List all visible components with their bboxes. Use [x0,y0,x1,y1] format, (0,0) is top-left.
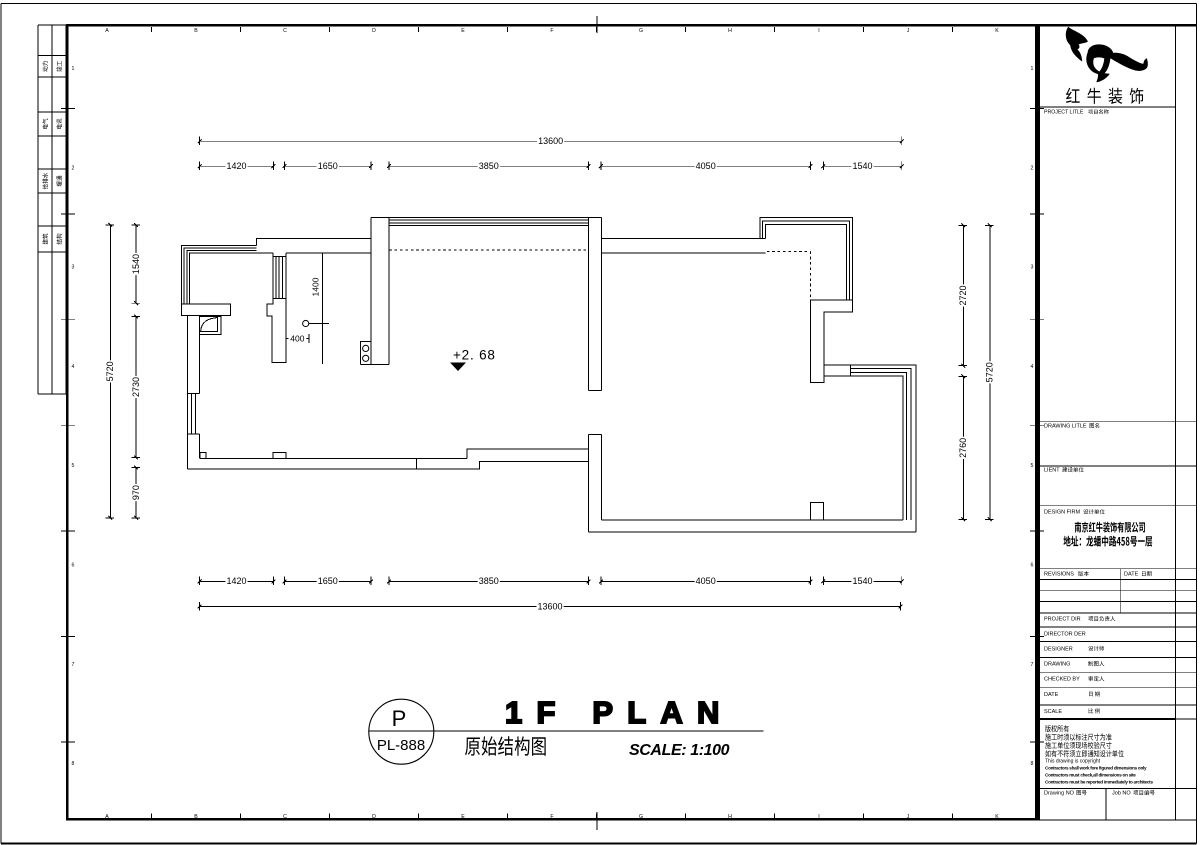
svg-text:F: F [550,28,553,34]
svg-text:13600: 13600 [538,601,563,611]
svg-text:4: 4 [1031,364,1034,370]
svg-text:I: I [818,814,819,820]
svg-text:2: 2 [1031,165,1034,171]
svg-text:3: 3 [72,265,75,271]
svg-text:5720: 5720 [985,362,995,382]
svg-text:3850: 3850 [479,576,499,586]
svg-text:Contractors must check,all dim: Contractors must check,all dimensions on… [1045,773,1136,778]
svg-text:C: C [283,814,287,820]
svg-text:PROJECT DIR: PROJECT DIR [1044,617,1081,623]
svg-text:DATE: DATE [1124,572,1139,578]
svg-text:4: 4 [72,364,75,370]
svg-text:D: D [372,28,376,34]
svg-text:1400: 1400 [310,277,320,296]
svg-text:B: B [194,28,198,34]
svg-text:SCALE: SCALE [1044,709,1062,715]
svg-text:1: 1 [1031,66,1034,72]
svg-text:SCALE: 1:100: SCALE: 1:100 [629,742,730,759]
svg-text:K: K [995,814,999,820]
svg-text:D: D [372,814,376,820]
svg-text:1F PLAN: 1F PLAN [505,695,734,730]
svg-text:A: A [105,28,109,34]
svg-text:B: B [194,814,198,820]
svg-text:J: J [907,28,910,34]
svg-text:7: 7 [1031,662,1034,668]
svg-text:G: G [639,814,643,820]
svg-text:2760: 2760 [958,438,968,458]
svg-text:8: 8 [1031,761,1034,767]
svg-text:970: 970 [131,485,141,500]
svg-text:Job NO: Job NO [1112,791,1131,797]
svg-text:PROJECT LITLE: PROJECT LITLE [1044,110,1084,116]
svg-text:H: H [728,28,732,34]
svg-text:2: 2 [72,165,75,171]
svg-text:7: 7 [72,662,75,668]
svg-text:1650: 1650 [318,161,338,171]
svg-text:1420: 1420 [226,161,246,171]
svg-text:5720: 5720 [105,361,115,381]
svg-text:DESIGN FIRM: DESIGN FIRM [1044,510,1080,516]
svg-text:400: 400 [290,333,304,343]
svg-text:1540: 1540 [852,161,872,171]
svg-text:DATE: DATE [1044,692,1059,698]
svg-text:REVISIONS: REVISIONS [1044,572,1074,578]
svg-text:E: E [461,814,465,820]
svg-text:+2. 68: +2. 68 [453,348,496,363]
svg-text:I: I [818,28,819,34]
svg-text:1420: 1420 [226,576,246,586]
svg-text:13600: 13600 [538,136,563,146]
svg-text:8: 8 [72,761,75,767]
svg-text:1540: 1540 [131,254,141,274]
svg-text:H: H [728,814,732,820]
svg-text:Contractors shall work fore fi: Contractors shall work fore figured dime… [1045,766,1147,771]
svg-text:5: 5 [72,463,75,469]
svg-text:DIRECTOR DER: DIRECTOR DER [1044,632,1086,638]
svg-text:Contractors must be reported i: Contractors must be reported immediately… [1045,780,1153,785]
svg-text:1: 1 [72,66,75,72]
svg-text:3: 3 [1031,265,1034,271]
svg-text:DRAWING LITLE: DRAWING LITLE [1044,424,1087,430]
svg-text:Drawing NO: Drawing NO [1044,791,1075,797]
svg-text:6: 6 [72,563,75,569]
svg-text:CHECKED BY: CHECKED BY [1044,677,1080,683]
svg-text:E: E [461,28,465,34]
svg-text:4050: 4050 [696,161,716,171]
svg-text:2720: 2720 [958,285,968,305]
svg-text:K: K [995,28,999,34]
svg-text:P: P [392,706,407,731]
svg-text:5: 5 [1031,463,1034,469]
svg-text:1540: 1540 [852,576,872,586]
svg-text:PL-888: PL-888 [377,737,425,754]
svg-text:3850: 3850 [479,161,499,171]
svg-text:F: F [550,814,553,820]
svg-text:DRAWING: DRAWING [1044,662,1070,668]
svg-text:2730: 2730 [131,377,141,397]
svg-text:G: G [639,28,643,34]
svg-text:This drawing is copyright: This drawing is copyright [1045,759,1101,765]
svg-text:LIENT: LIENT [1044,468,1060,474]
svg-text:J: J [907,814,910,820]
svg-text:C: C [283,28,287,34]
svg-text:6: 6 [1031,563,1034,569]
svg-text:DESIGNER: DESIGNER [1044,647,1073,653]
svg-text:4050: 4050 [696,576,716,586]
svg-text:1650: 1650 [318,576,338,586]
svg-text:A: A [105,814,109,820]
